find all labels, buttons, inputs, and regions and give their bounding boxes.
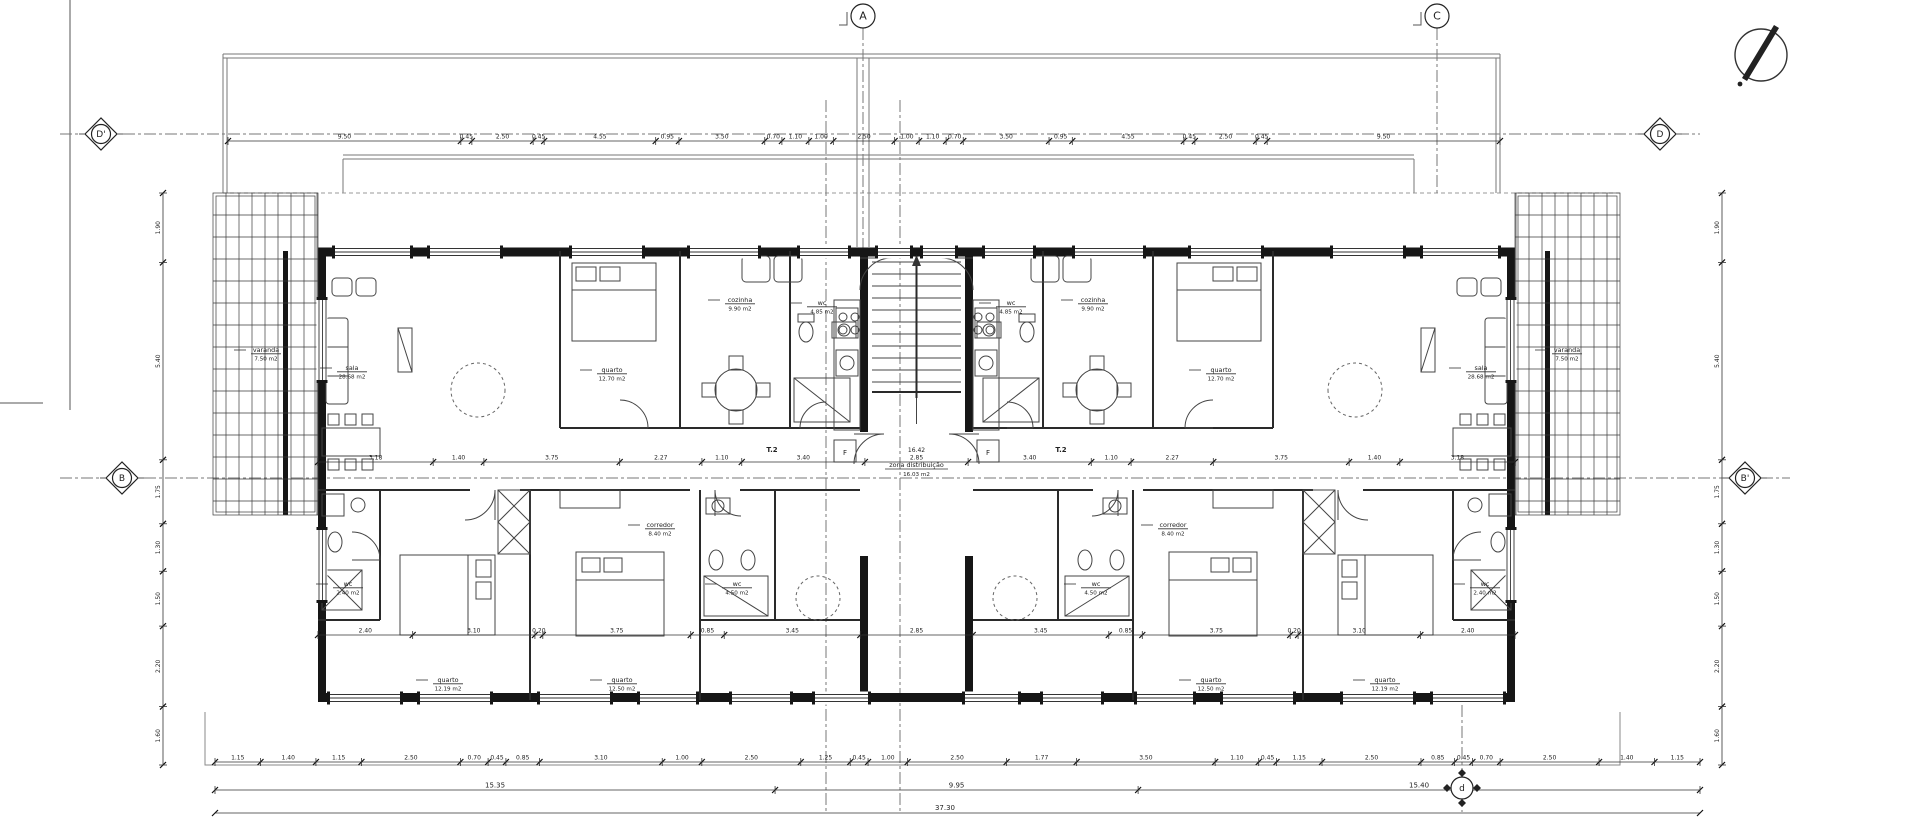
dimension-chain-top: 9.500.452.500.454.550.953.500.701.101.00… — [225, 134, 1503, 146]
svg-text:cozinha: cozinha — [728, 296, 753, 304]
svg-text:B: B — [119, 474, 125, 484]
svg-text:9.50: 9.50 — [1377, 134, 1391, 141]
svg-text:0.95: 0.95 — [661, 134, 675, 141]
svg-text:2.40 m2: 2.40 m2 — [336, 591, 359, 597]
svg-text:7.50 m2: 7.50 m2 — [1555, 357, 1578, 363]
svg-text:2.50: 2.50 — [404, 755, 418, 762]
svg-text:3.40: 3.40 — [797, 455, 811, 462]
svg-text:12.19 m2: 12.19 m2 — [435, 687, 462, 693]
room-label-wc-top-right: wc4.85 m2 — [979, 299, 1026, 316]
svg-text:3.40: 3.40 — [1023, 455, 1037, 462]
svg-text:1.00: 1.00 — [814, 134, 828, 141]
room-label-quarto-b2-right: quarto12.50 m2 — [1179, 676, 1226, 693]
svg-text:4.50 m2: 4.50 m2 — [725, 591, 748, 597]
dimension-chain-bottom-detail: 1.151.401.152.500.700.450.853.101.002.50… — [212, 755, 1703, 767]
svg-text:0.20: 0.20 — [532, 628, 546, 635]
svg-text:0.85: 0.85 — [1119, 628, 1133, 635]
svg-text:1.90: 1.90 — [1714, 221, 1721, 235]
svg-text:4.85 m2: 4.85 m2 — [810, 310, 833, 316]
svg-text:0.95: 0.95 — [1054, 134, 1068, 141]
svg-text:A: A — [859, 10, 867, 23]
svg-text:28.68 m2: 28.68 m2 — [1468, 375, 1495, 381]
svg-text:3.18: 3.18 — [369, 455, 383, 462]
svg-text:3.50: 3.50 — [715, 134, 729, 141]
grid-bubble-d-prime: D' — [79, 118, 123, 150]
svg-text:1.10: 1.10 — [926, 134, 940, 141]
svg-text:3.75: 3.75 — [1210, 628, 1224, 635]
svg-text:3.10: 3.10 — [594, 755, 608, 762]
svg-text:0.45: 0.45 — [1261, 755, 1275, 762]
svg-text:D: D — [1657, 130, 1664, 140]
svg-text:1.40: 1.40 — [282, 755, 296, 762]
grid-bubble-c: C — [1413, 4, 1449, 28]
svg-text:8.40 m2: 8.40 m2 — [1161, 532, 1184, 538]
svg-text:3.50: 3.50 — [999, 134, 1013, 141]
svg-text:quarto: quarto — [601, 366, 622, 374]
svg-text:sala: sala — [346, 364, 359, 372]
canopy-outlines — [223, 54, 1620, 247]
floor-plan-svg: 9.500.452.500.454.550.953.500.701.101.00… — [0, 0, 1920, 820]
svg-text:3.75: 3.75 — [610, 628, 624, 635]
room-label-quarto-b1-right: quarto12.19 m2 — [1353, 676, 1400, 693]
svg-text:2.50: 2.50 — [1365, 755, 1379, 762]
grid-bubble-b: B — [100, 462, 144, 494]
svg-text:2.50: 2.50 — [1543, 755, 1557, 762]
svg-text:2.50: 2.50 — [496, 134, 510, 141]
svg-text:1.40: 1.40 — [452, 455, 466, 462]
stair-core — [912, 255, 921, 424]
building-right-half — [917, 193, 1621, 705]
floor-plan-sheet: 9.500.452.500.454.550.953.500.701.101.00… — [0, 0, 1920, 820]
dimension-chains: 9.500.452.500.454.550.953.500.701.101.00… — [155, 134, 1726, 817]
svg-text:9.50: 9.50 — [338, 134, 352, 141]
svg-text:0.45: 0.45 — [1255, 134, 1269, 141]
room-labels: sala28.68 m2sala28.68 m2quarto12.70 m2qu… — [234, 296, 1582, 693]
svg-text:quarto: quarto — [1210, 366, 1231, 374]
svg-text:1.25: 1.25 — [819, 755, 833, 762]
svg-text:1.15: 1.15 — [1293, 755, 1307, 762]
svg-text:varanda: varanda — [1554, 346, 1580, 354]
svg-text:12.50 m2: 12.50 m2 — [1198, 687, 1225, 693]
svg-text:0.85: 0.85 — [701, 628, 715, 635]
north-arrow-icon — [1735, 25, 1787, 86]
svg-text:2.20: 2.20 — [155, 659, 162, 673]
svg-text:2.85: 2.85 — [910, 628, 924, 635]
svg-text:12.70 m2: 12.70 m2 — [599, 377, 626, 383]
svg-text:T.2: T.2 — [766, 446, 777, 454]
svg-text:1.00: 1.00 — [900, 134, 914, 141]
unit-type-label-right: T.2 — [1055, 446, 1066, 454]
svg-text:1.15: 1.15 — [1671, 755, 1685, 762]
svg-text:5.40: 5.40 — [1714, 354, 1721, 368]
fridge-label-right: F — [986, 449, 990, 457]
svg-text:37.30: 37.30 — [935, 804, 955, 812]
svg-text:1.10: 1.10 — [1230, 755, 1244, 762]
room-label-corredor-right: corredor8.40 m2 — [1141, 521, 1188, 538]
svg-text:2.40: 2.40 — [359, 628, 373, 635]
core-label: 16.42zona distribuição16.03 m2 — [885, 447, 948, 478]
grid-bubble-bottom-d: d — [1443, 769, 1481, 807]
svg-text:wc: wc — [733, 580, 742, 588]
room-label-quarto-b2-left: quarto12.50 m2 — [590, 676, 637, 693]
svg-text:0.45: 0.45 — [532, 134, 546, 141]
svg-text:quarto: quarto — [1374, 676, 1395, 684]
dimension-chain-left: 1.905.401.751.301.502.201.60 — [155, 190, 167, 768]
svg-text:D': D' — [96, 130, 105, 140]
svg-text:0.45: 0.45 — [852, 755, 866, 762]
svg-text:1.50: 1.50 — [1714, 592, 1721, 606]
svg-text:1.15: 1.15 — [332, 755, 346, 762]
svg-text:quarto: quarto — [1200, 676, 1221, 684]
svg-text:0.85: 0.85 — [1431, 755, 1445, 762]
svg-text:quarto: quarto — [611, 676, 632, 684]
svg-text:0.20: 0.20 — [1287, 628, 1301, 635]
svg-text:8.40 m2: 8.40 m2 — [648, 532, 671, 538]
svg-text:2.50: 2.50 — [745, 755, 759, 762]
svg-text:quarto: quarto — [437, 676, 458, 684]
svg-text:1.75: 1.75 — [155, 485, 162, 499]
svg-text:16.03 m2: 16.03 m2 — [903, 472, 930, 478]
svg-text:2.50: 2.50 — [857, 134, 871, 141]
svg-text:0.45: 0.45 — [460, 134, 474, 141]
svg-text:28.68 m2: 28.68 m2 — [339, 375, 366, 381]
svg-text:3.45: 3.45 — [1034, 628, 1048, 635]
svg-text:1.10: 1.10 — [715, 455, 729, 462]
svg-text:2.40 m2: 2.40 m2 — [1473, 591, 1496, 597]
room-label-quarto-top-right: quarto12.70 m2 — [1189, 366, 1236, 383]
svg-text:B': B' — [1741, 474, 1750, 484]
svg-text:2.27: 2.27 — [1166, 455, 1180, 462]
svg-text:12.19 m2: 12.19 m2 — [1372, 687, 1399, 693]
room-label-sala-right: sala28.68 m2 — [1449, 364, 1496, 381]
building-left-half — [213, 193, 917, 705]
svg-text:wc: wc — [344, 580, 353, 588]
svg-text:varanda: varanda — [253, 346, 279, 354]
svg-text:0.45: 0.45 — [490, 755, 504, 762]
svg-text:wc: wc — [818, 299, 827, 307]
svg-text:1.10: 1.10 — [789, 134, 803, 141]
svg-text:2.50: 2.50 — [950, 755, 964, 762]
svg-text:9.90 m2: 9.90 m2 — [1081, 307, 1104, 313]
grid-bubble-a: A — [839, 4, 875, 28]
svg-text:1.15: 1.15 — [231, 755, 245, 762]
svg-text:1.40: 1.40 — [1368, 455, 1382, 462]
svg-text:3.45: 3.45 — [786, 628, 800, 635]
svg-text:1.40: 1.40 — [1620, 755, 1634, 762]
svg-text:3.75: 3.75 — [545, 455, 559, 462]
svg-text:2.27: 2.27 — [654, 455, 668, 462]
svg-text:0.45: 0.45 — [1183, 134, 1197, 141]
svg-text:12.50 m2: 12.50 m2 — [609, 687, 636, 693]
svg-text:2.40: 2.40 — [1461, 628, 1475, 635]
svg-text:1.00: 1.00 — [881, 755, 895, 762]
svg-text:12.70 m2: 12.70 m2 — [1208, 377, 1235, 383]
svg-text:corredor: corredor — [1160, 521, 1187, 529]
svg-text:T.2: T.2 — [1055, 446, 1066, 454]
svg-text:15.40: 15.40 — [1409, 782, 1429, 790]
room-label-cozinha-right: cozinha9.90 m2 — [1061, 296, 1108, 313]
svg-text:corredor: corredor — [647, 521, 674, 529]
svg-text:9.95: 9.95 — [949, 782, 965, 790]
svg-text:0.85: 0.85 — [516, 755, 530, 762]
svg-text:1.60: 1.60 — [1714, 729, 1721, 743]
room-label-wc-b-right: wc4.50 m2 — [1064, 580, 1111, 597]
svg-text:1.30: 1.30 — [155, 541, 162, 555]
svg-text:0.45: 0.45 — [1457, 755, 1471, 762]
dimension-overall: 37.30 — [212, 804, 1703, 816]
svg-text:3.10: 3.10 — [1353, 628, 1367, 635]
svg-text:0.70: 0.70 — [468, 755, 482, 762]
svg-text:1.30: 1.30 — [1714, 541, 1721, 555]
svg-text:1.75: 1.75 — [1714, 485, 1721, 499]
svg-text:1.90: 1.90 — [155, 221, 162, 235]
svg-text:4.85 m2: 4.85 m2 — [999, 310, 1022, 316]
svg-text:cozinha: cozinha — [1081, 296, 1106, 304]
room-label-quarto-b1-left: quarto12.19 m2 — [416, 676, 463, 693]
svg-text:C: C — [1433, 10, 1441, 23]
svg-text:3.50: 3.50 — [1139, 755, 1153, 762]
room-label-quarto-top-left: quarto12.70 m2 — [580, 366, 627, 383]
svg-text:2.20: 2.20 — [1714, 659, 1721, 673]
svg-text:0.70: 0.70 — [1480, 755, 1494, 762]
svg-text:5.40: 5.40 — [155, 354, 162, 368]
svg-text:3.10: 3.10 — [467, 628, 481, 635]
svg-text:0.70: 0.70 — [767, 134, 781, 141]
stair-treads — [872, 262, 917, 382]
svg-text:15.35: 15.35 — [485, 782, 505, 790]
svg-text:3.18: 3.18 — [1451, 455, 1465, 462]
grid-bubble-d: D — [1638, 118, 1682, 150]
grid-bubble-b-prime: B' — [1723, 462, 1767, 494]
room-label-cozinha-left: cozinha9.90 m2 — [708, 296, 755, 313]
svg-text:4.50 m2: 4.50 m2 — [1084, 591, 1107, 597]
svg-text:wc: wc — [1092, 580, 1101, 588]
svg-text:9.90 m2: 9.90 m2 — [728, 307, 751, 313]
svg-text:1.10: 1.10 — [1104, 455, 1118, 462]
svg-text:3.75: 3.75 — [1275, 455, 1289, 462]
svg-text:2.50: 2.50 — [1219, 134, 1233, 141]
svg-text:0.70: 0.70 — [948, 134, 962, 141]
room-label-wc-b-left: wc4.50 m2 — [705, 580, 752, 597]
svg-text:7.50 m2: 7.50 m2 — [254, 357, 277, 363]
svg-text:1.00: 1.00 — [675, 755, 689, 762]
svg-text:4.55: 4.55 — [593, 134, 607, 141]
svg-text:1.77: 1.77 — [1035, 755, 1049, 762]
svg-text:1.60: 1.60 — [155, 729, 162, 743]
dimension-chain-right: 1.905.401.751.301.502.201.60 — [1714, 190, 1726, 768]
room-label-corredor-left: corredor8.40 m2 — [628, 521, 675, 538]
room-label-wc-top-left: wc4.85 m2 — [790, 299, 837, 316]
svg-text:zona distribuição: zona distribuição — [889, 461, 944, 469]
svg-text:sala: sala — [1475, 364, 1488, 372]
svg-text:4.55: 4.55 — [1121, 134, 1135, 141]
unit-type-label-left: T.2 — [766, 446, 777, 454]
room-label-varanda-left: varanda7.50 m2 — [234, 346, 281, 363]
fridge-label-left: F — [843, 449, 847, 457]
svg-text:1.50: 1.50 — [155, 592, 162, 606]
sheet-lines — [0, 0, 70, 410]
svg-text:16.42: 16.42 — [908, 447, 925, 454]
svg-text:wc: wc — [1481, 580, 1490, 588]
svg-text:d: d — [1459, 784, 1465, 794]
svg-text:wc: wc — [1007, 299, 1016, 307]
